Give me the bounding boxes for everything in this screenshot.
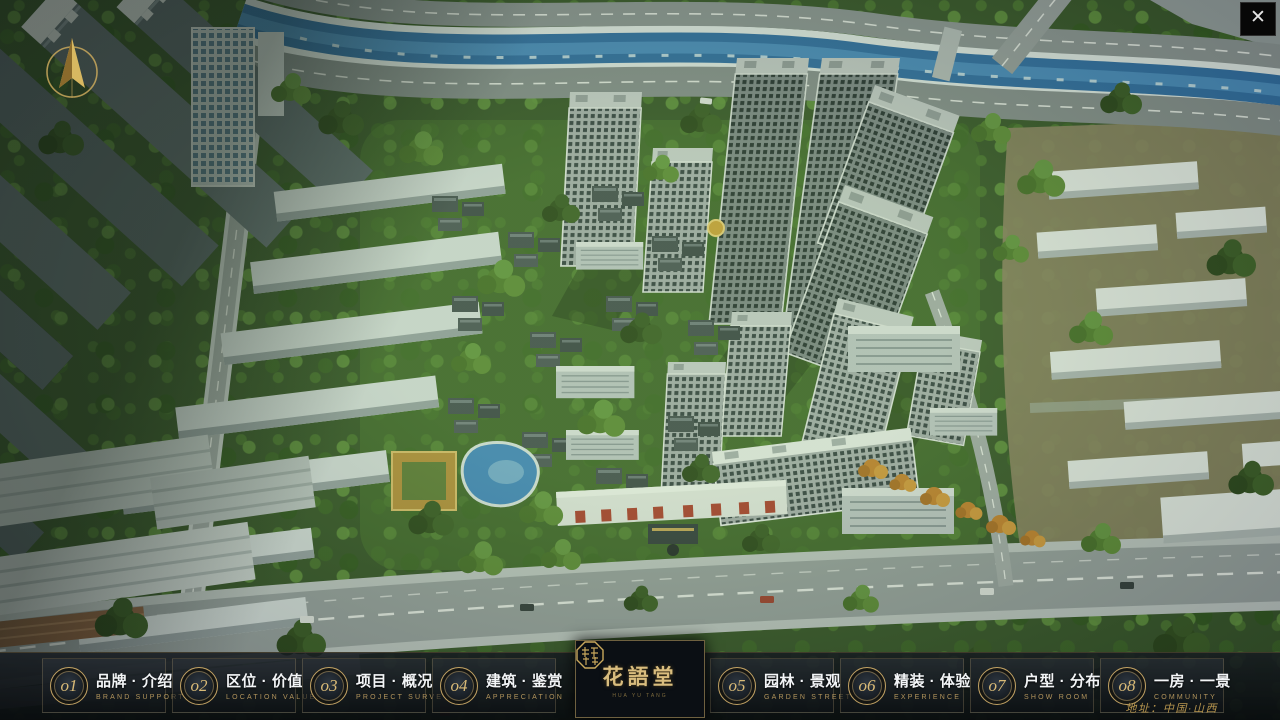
seal-icon — [576, 641, 604, 669]
project-name: 花語堂 — [603, 661, 678, 691]
nav-item-brand[interactable]: o1 品牌 · 介绍 BRAND SUPPORT — [42, 658, 166, 713]
nav-number-badge: o4 — [440, 667, 478, 705]
nav-number-badge: o1 — [50, 667, 88, 705]
nav-item-project[interactable]: o3 项目 · 概况 PROJECT SURVEY — [302, 658, 426, 713]
project-address: 地址：中国·山西 — [1125, 700, 1218, 716]
nav-number-badge: o5 — [718, 667, 756, 705]
nav-item-interior[interactable]: o6 精装 · 体验 EXPERIENCE — [840, 658, 964, 713]
nav-number-badge: o2 — [180, 667, 218, 705]
project-name-en: HUA YU TANG — [612, 693, 667, 699]
nav-label-zh: 一房 · 一景 — [1154, 670, 1231, 691]
nav-label-zh: 建筑 · 鉴赏 — [486, 670, 564, 691]
nav-label-en: GARDEN STREET — [764, 694, 852, 701]
nav-label-en: APPRECIATION — [486, 694, 564, 701]
project-logo-panel[interactable]: 花語堂 HUA YU TANG — [575, 640, 705, 718]
nav-number-badge: o6 — [848, 667, 886, 705]
compass-icon — [40, 36, 104, 102]
nav-label-en: SHOW ROOM — [1024, 694, 1101, 701]
presentation-window: ✕ o1 品牌 · 介绍 BRAND SUPPORT o2 区位 · 价值 LO… — [0, 0, 1280, 720]
nav-item-garden[interactable]: o5 园林 · 景观 GARDEN STREET — [710, 658, 834, 713]
nav-number-badge: o8 — [1108, 667, 1146, 705]
nav-label-zh: 精装 · 体验 — [894, 670, 971, 691]
nav-number-badge: o3 — [310, 667, 348, 705]
close-button[interactable]: ✕ — [1240, 2, 1276, 36]
nav-label-en: EXPERIENCE — [894, 694, 971, 701]
nav-item-architecture[interactable]: o4 建筑 · 鉴赏 APPRECIATION — [432, 658, 556, 713]
nav-item-floorplan[interactable]: o7 户型 · 分布 SHOW ROOM — [970, 658, 1094, 713]
nav-label-zh: 园林 · 景观 — [764, 670, 852, 691]
nav-item-location[interactable]: o2 区位 · 价值 LOCATION VALUE — [172, 658, 296, 713]
nav-label-zh: 户型 · 分布 — [1024, 670, 1101, 691]
lighting-vignette — [0, 0, 1280, 720]
close-icon: ✕ — [1250, 7, 1266, 28]
nav-number-badge: o7 — [978, 667, 1016, 705]
